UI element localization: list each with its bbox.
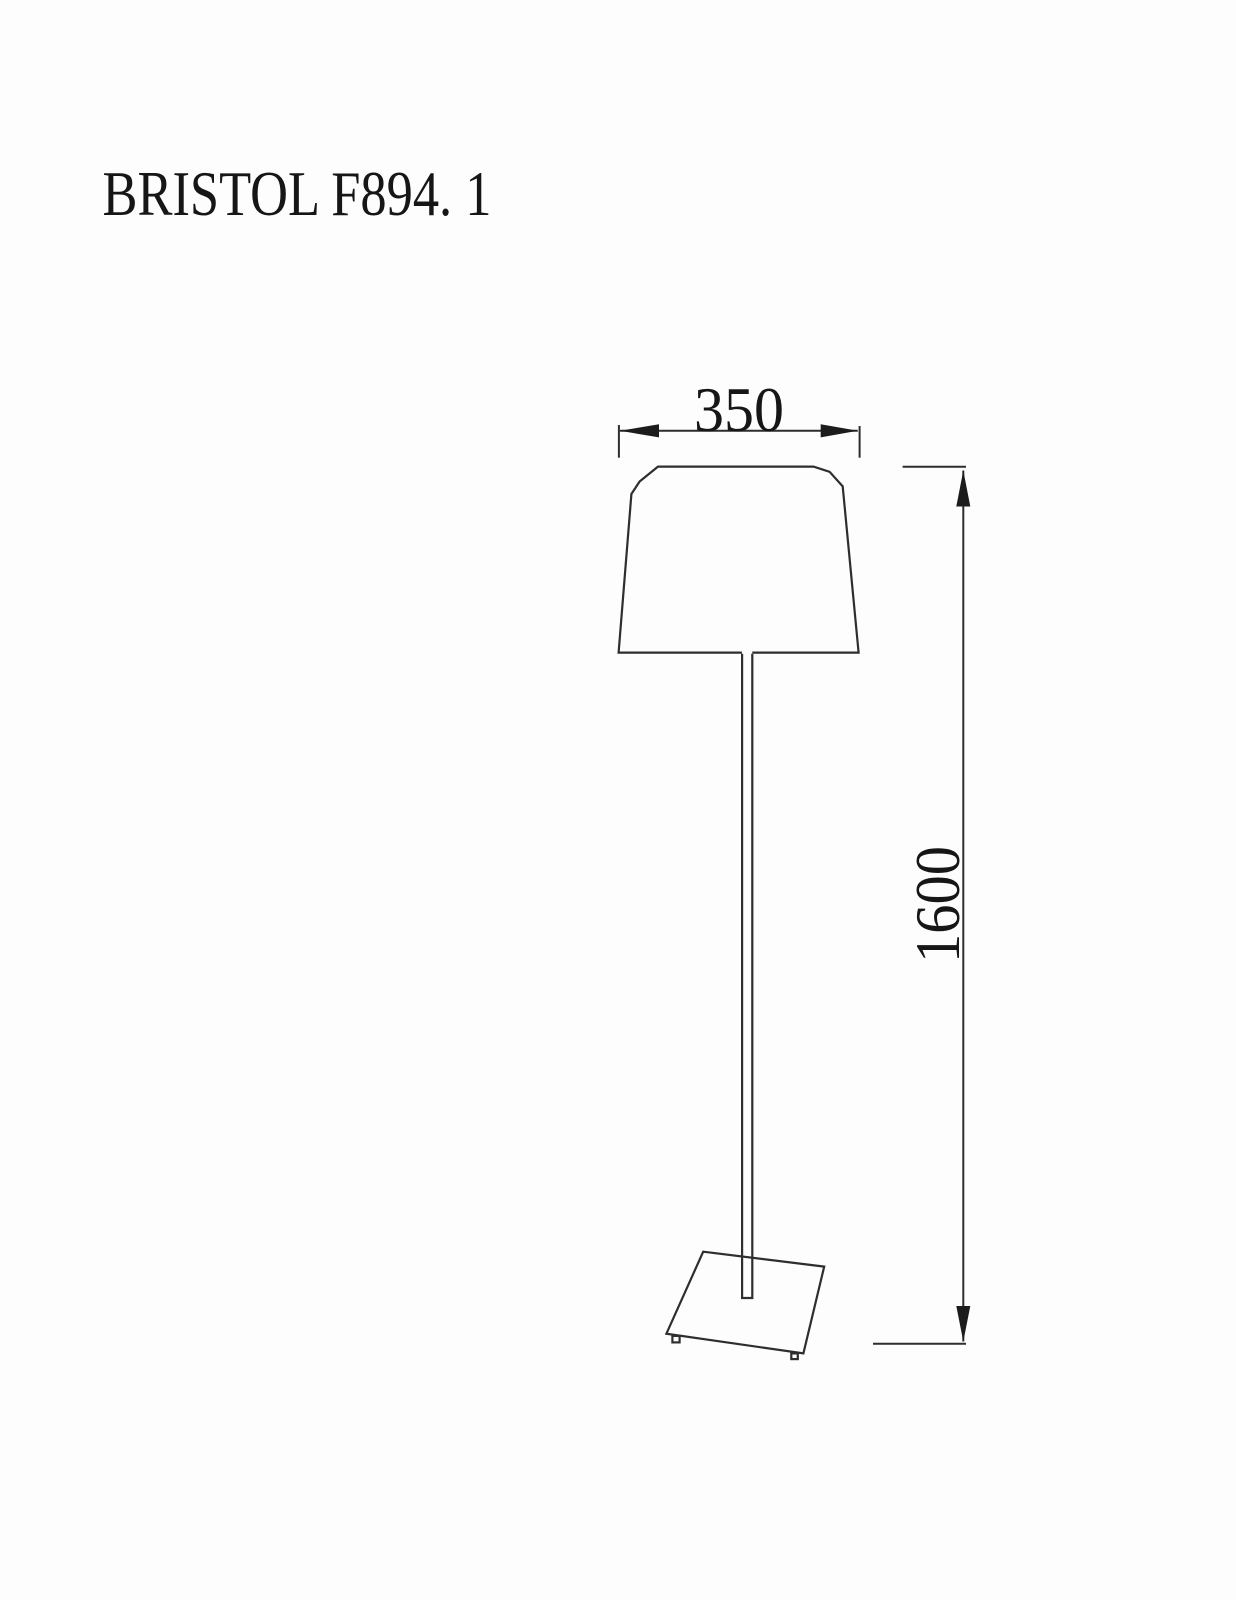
svg-text:1600: 1600: [902, 846, 973, 963]
svg-text:BRISTOL F894. 1: BRISTOL F894. 1: [103, 158, 492, 229]
svg-text:350: 350: [694, 374, 784, 445]
